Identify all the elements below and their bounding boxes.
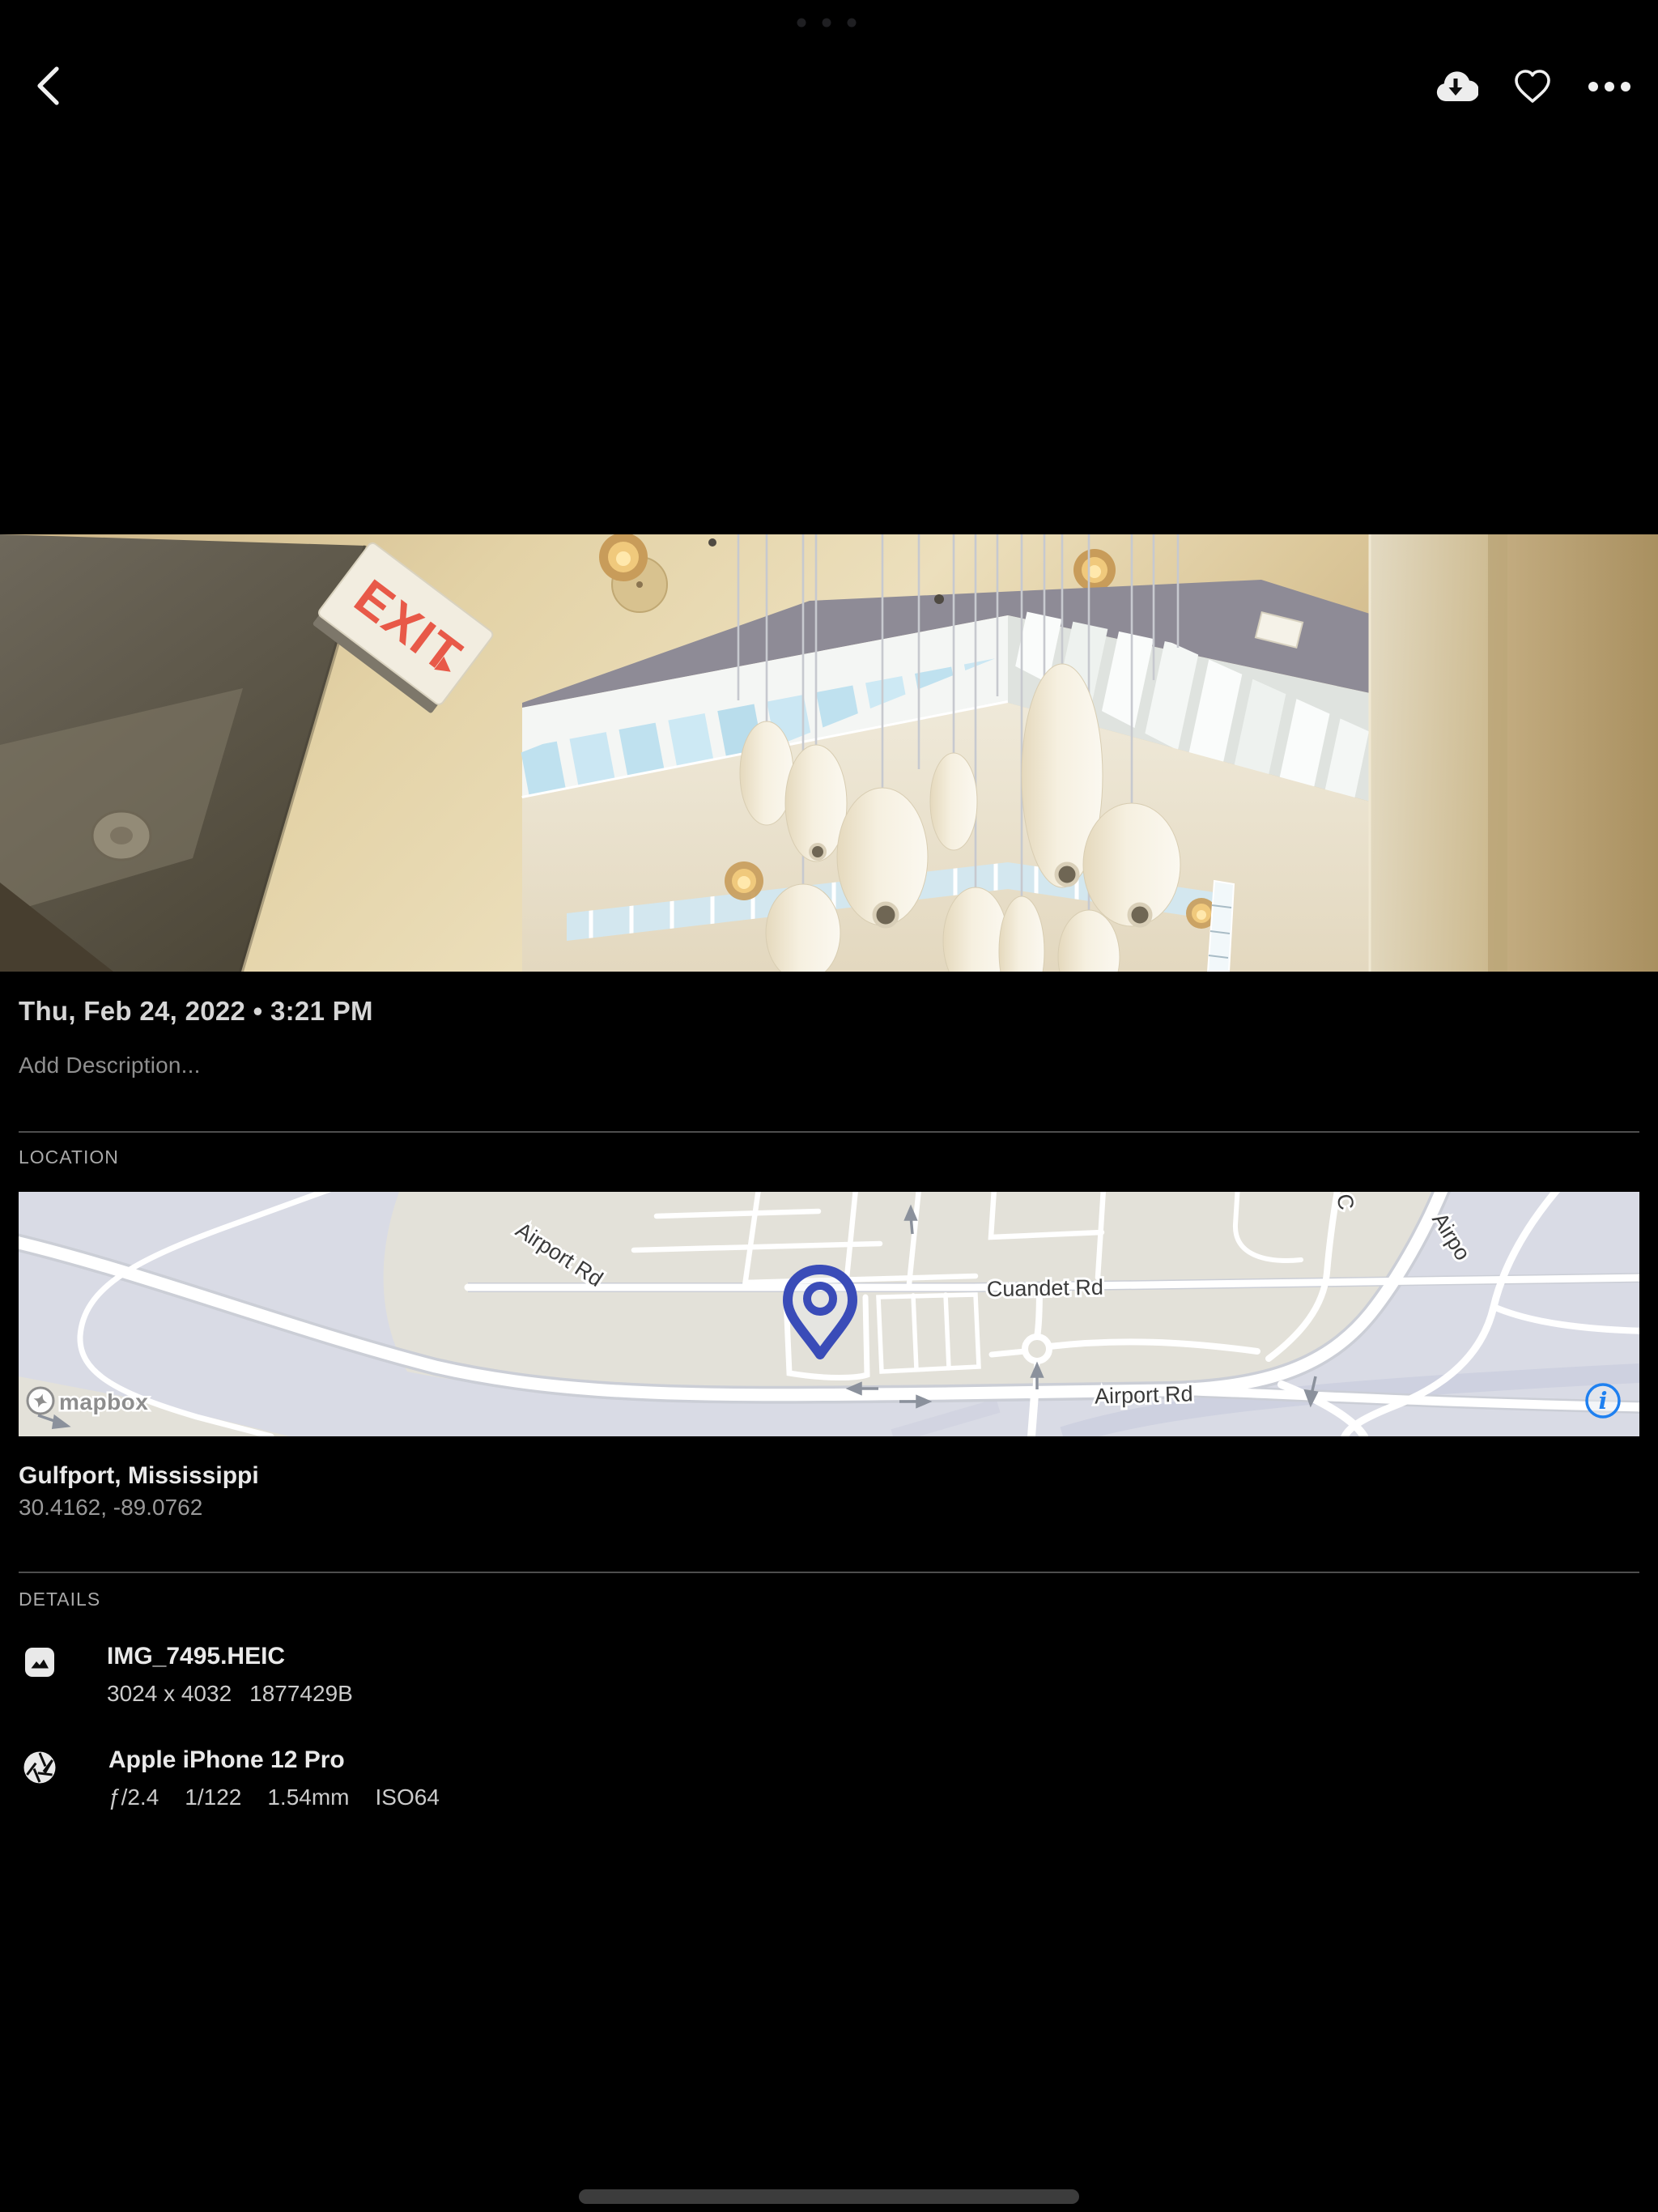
heart-outline-icon (1512, 67, 1553, 104)
camera-detail-row: Apple iPhone 12 Pro ƒ/2.4 1/122 1.54mm I… (23, 1744, 466, 1812)
camera-name: Apple iPhone 12 Pro (108, 1744, 466, 1776)
file-name: IMG_7495.HEIC (107, 1640, 371, 1673)
location-heading: LOCATION (19, 1146, 119, 1168)
info-icon: i (1598, 1387, 1607, 1414)
recessed-light (599, 534, 648, 581)
divider (19, 1131, 1639, 1133)
aperture-icon (23, 1750, 57, 1784)
photo[interactable]: EXIT (0, 534, 1658, 972)
details-heading: DETAILS (19, 1589, 100, 1610)
file-dimensions: 3024 x 4032 (107, 1679, 232, 1708)
map-image: Airport Rd Cuandet Rd Airport Rd Airpo C… (19, 1192, 1639, 1436)
camera-focal-length: 1.54mm (267, 1783, 349, 1812)
recessed-light (1073, 549, 1116, 591)
road-label-airport-rd-lower: Airport Rd (1095, 1381, 1193, 1408)
back-button[interactable] (31, 63, 66, 108)
photo-image: EXIT (0, 534, 1658, 972)
location-coordinates: 30.4162, -89.0762 (19, 1495, 202, 1521)
camera-shutter-speed: 1/122 (185, 1783, 241, 1812)
ellipsis-dots-icon (795, 18, 858, 28)
mapbox-attribution[interactable]: mapbox (28, 1388, 148, 1414)
recessed-light (725, 861, 763, 900)
favorite-button[interactable] (1512, 67, 1553, 104)
more-options-button[interactable] (1587, 81, 1632, 92)
home-indicator-bar[interactable] (579, 2189, 1079, 2204)
location-place: Gulfport, Mississippi (19, 1462, 259, 1490)
file-size: 1877429B (249, 1679, 353, 1708)
description-input[interactable]: Add Description... (19, 1053, 201, 1078)
image-file-icon (24, 1647, 55, 1678)
location-map[interactable]: Airport Rd Cuandet Rd Airport Rd Airpo C… (19, 1192, 1639, 1436)
mapbox-logo-text: mapbox (59, 1389, 148, 1414)
file-detail-row: IMG_7495.HEIC 3024 x 4032 1877429B (24, 1640, 371, 1708)
photo-datetime: Thu, Feb 24, 2022 • 3:21 PM (19, 996, 373, 1027)
divider (19, 1572, 1639, 1573)
map-info-button[interactable]: i (1587, 1385, 1619, 1417)
road-label-cuandet-rd: Cuandet Rd (987, 1275, 1104, 1302)
photo-detail-screen: EXIT Thu, Feb 24, 2022 • 3:21 PM Add Des… (0, 0, 1658, 2212)
cloud-download-icon (1433, 69, 1478, 104)
camera-iso: ISO64 (376, 1783, 440, 1812)
camera-aperture: ƒ/2.4 (108, 1783, 159, 1812)
chevron-left-icon (31, 63, 66, 108)
download-button[interactable] (1433, 69, 1478, 104)
three-dots-menu-icon (1587, 81, 1632, 92)
multitask-indicator-icon[interactable] (795, 17, 858, 32)
